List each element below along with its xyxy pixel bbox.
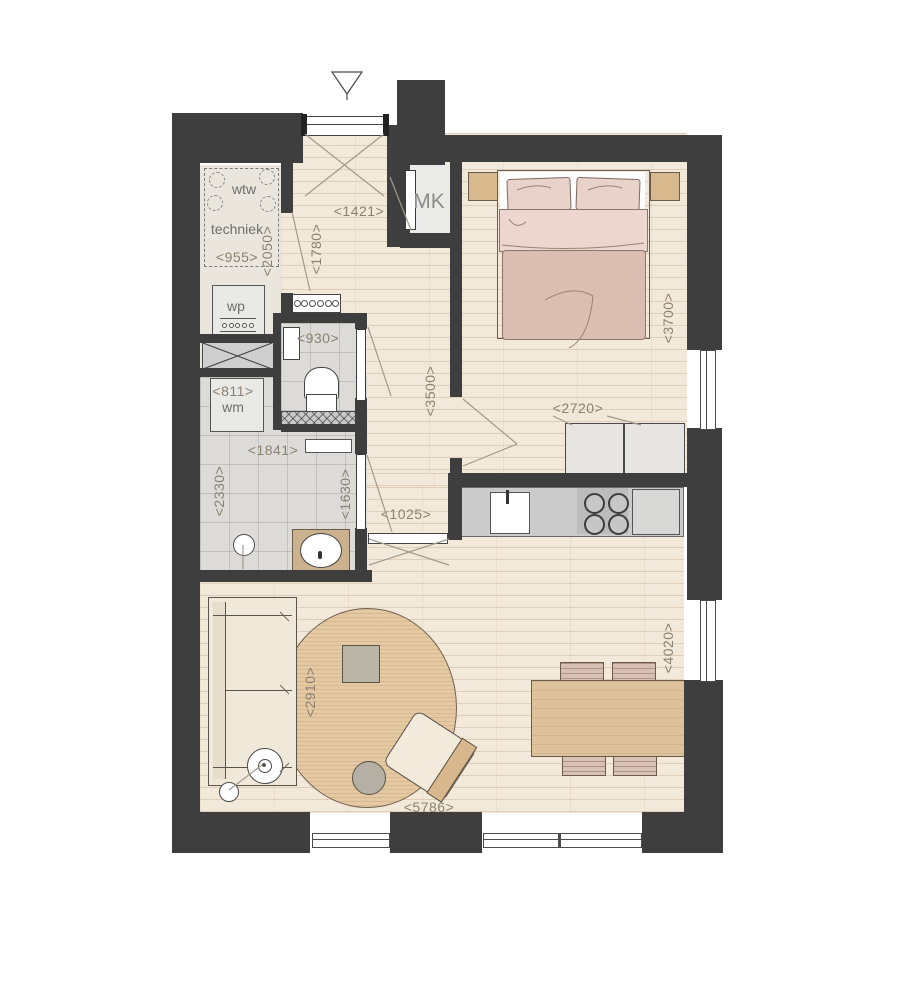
dim-label-2720: <2720> [550, 400, 606, 416]
duct-circle [209, 172, 225, 188]
wall-bottom-right-block [642, 812, 723, 853]
wall-top-band-right [440, 135, 722, 162]
shower-head [233, 534, 255, 556]
grille-dot [317, 300, 324, 307]
label-techniek: techniek [207, 221, 267, 237]
stove-burner [584, 493, 605, 514]
wall-right-lower [684, 680, 723, 813]
grille-dot [229, 323, 234, 328]
nightstand-left [468, 172, 498, 201]
window-living-bottom-left [312, 833, 390, 848]
bed-duvet [502, 250, 646, 340]
window-mullion [558, 833, 561, 847]
dim-label-1421: <1421> [331, 203, 387, 219]
dim-label-3700: <3700> [660, 290, 676, 346]
wall-toilet-top [273, 313, 367, 323]
duct-circle [207, 195, 223, 211]
hall-vent-grille [292, 294, 341, 313]
label-wp: wp [218, 298, 254, 314]
dim-label-1841: <1841> [245, 442, 301, 458]
toilet-door-leaf [356, 329, 366, 401]
wall-toilet-bottom [281, 424, 355, 432]
dim-label-3500: <3500> [422, 363, 438, 419]
heat-pump-grille [220, 318, 256, 332]
sofa-seat-divider [226, 690, 292, 691]
dim-label-2910: <2910> [302, 664, 318, 720]
sofa-armrest-top [213, 602, 292, 616]
kitchen-cabinet-right [632, 489, 680, 535]
wall-top-left-band [172, 113, 303, 163]
wall-bath-bottom [172, 570, 372, 582]
bed-pillow-left [506, 177, 571, 212]
dim-label-2330: <2330> [211, 463, 227, 519]
wardrobe-unit-left [565, 423, 624, 475]
dim-label-1630: <1630> [337, 466, 353, 522]
side-table-round [352, 761, 386, 795]
wall-top-block [397, 80, 445, 165]
bathroom-door-leaf [356, 454, 366, 530]
grille-dot [294, 300, 301, 307]
grille-dot [301, 300, 308, 307]
sink-faucet [506, 490, 509, 504]
window-bedroom-right [700, 350, 716, 430]
sofa-back [213, 602, 226, 779]
floor-lamp-inner [258, 759, 272, 773]
wall-bottom-left-block [172, 812, 310, 853]
floor-gap-hall-living [360, 473, 455, 487]
wall-right-mid [687, 428, 722, 600]
wall-below-mk [400, 233, 452, 248]
stove-burner [608, 493, 629, 514]
entrance-door-sill [303, 116, 389, 136]
wall-toilet-right-upper [355, 313, 367, 329]
entrance-hinge-left [301, 114, 307, 136]
wall-bath-right-upper [355, 430, 367, 454]
grille-dot [325, 300, 332, 307]
wall-toilet-right-lower [355, 398, 367, 430]
dim-label-4020: <4020> [660, 620, 676, 676]
grille-dot [249, 323, 254, 328]
grille-dot [332, 300, 339, 307]
label-wtw: wtw [226, 181, 262, 197]
label-mk: MK [409, 190, 449, 214]
dim-label-930: <930> [290, 330, 346, 346]
wall-kitchen-stub [448, 473, 462, 540]
dim-label-2050: <2050> [259, 223, 275, 279]
dim-label-1025: <1025> [378, 506, 434, 522]
wall-bedroom-partition-upper [450, 162, 462, 397]
wall-left-column [172, 113, 200, 853]
dim-label-1780: <1780> [308, 221, 324, 277]
grille-dot [242, 323, 247, 328]
wall-techniek-stub-upper [281, 163, 293, 213]
wardrobe-unit-right [624, 423, 685, 475]
entrance-hinge-right [383, 114, 389, 136]
grille-dot [222, 323, 227, 328]
grille-dot [309, 300, 316, 307]
wall-right-upper [687, 162, 722, 350]
wall-toilet-left [273, 313, 281, 430]
duct-circle [260, 196, 276, 212]
wall-kitchen-back [455, 473, 722, 487]
dining-table [531, 680, 685, 757]
dining-chair [562, 755, 606, 776]
dim-label-5786: <5786> [401, 799, 457, 815]
wall-bottom-mid-pillar [390, 812, 482, 853]
window-dining-right [700, 600, 716, 682]
dim-label-811: <811> [205, 383, 261, 399]
bath-radiator [305, 439, 352, 453]
window-living-bottom-right [483, 833, 642, 848]
entrance-triangle-icon [332, 72, 362, 100]
hall-opening-threshold [368, 533, 448, 544]
sink-faucet-dot [318, 551, 322, 559]
wall-shaft-bottom [198, 368, 281, 377]
wall-techniek-stub-lower [281, 293, 293, 315]
stove-burner [608, 514, 629, 535]
kitchen-sink [490, 492, 530, 534]
grille-dot [235, 323, 240, 328]
stove-burner [584, 514, 605, 535]
label-wm: wm [215, 399, 251, 415]
nightstand-right [650, 172, 680, 201]
floor-plan-canvas: wtw techniek wp MK <1421> <955> <930> <8… [0, 0, 922, 999]
floor-lamp-base [219, 782, 239, 802]
dim-label-955: <955> [209, 249, 265, 265]
bed-sheet [499, 209, 648, 252]
dining-chair [613, 755, 657, 776]
bed-pillow-right [575, 177, 640, 212]
wall-shaft-top [198, 334, 281, 343]
coffee-table [342, 645, 380, 683]
